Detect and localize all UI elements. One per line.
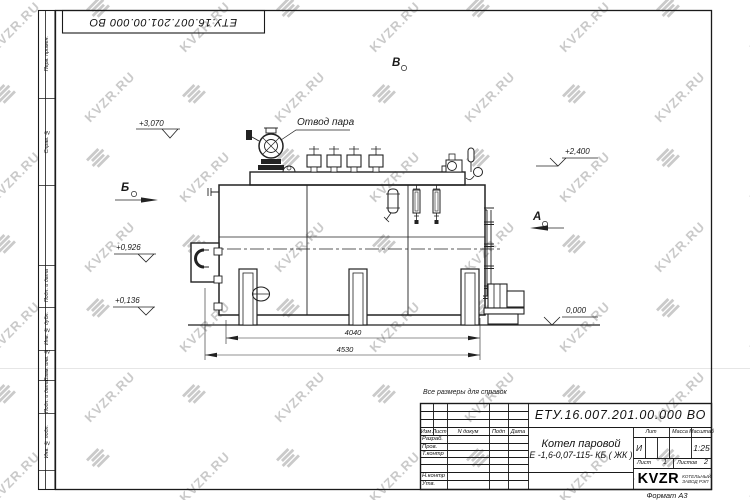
elevation-0136: +0,136: [115, 296, 140, 305]
elevation-3070: +3,070: [139, 119, 164, 128]
margin-cell-vzam-inv: Взам. инв. №: [38, 350, 55, 380]
row-prov: Пров.: [422, 444, 437, 450]
kvzr-spring-icon: [634, 472, 635, 486]
vessel: [384, 189, 400, 222]
doc-number-top: ЕТУ.16.007.201.00.000 ВО: [89, 16, 237, 28]
row-nkontr: Н.контр: [422, 473, 445, 479]
col-header-podp: Подп: [489, 428, 508, 435]
dimension-4530: 4530: [330, 345, 360, 354]
doc-number-top-box: ЕТУ.16.007.201.00.000 ВО: [62, 10, 265, 33]
massa-header: Масса: [669, 428, 691, 436]
row-razrab: Разраб.: [422, 436, 443, 442]
margin-cell-sprav-no: Справ. №: [38, 98, 55, 185]
view-label-b: Б: [121, 182, 129, 194]
margin-cell-podp-data-1: Подп. и дата: [38, 265, 55, 307]
margin-cell-inv-dubl: Инв. № дубл.: [38, 307, 55, 350]
steam-outlet-valve: [246, 128, 284, 170]
kvzr-logo-text: KVZR: [638, 471, 679, 487]
elevation-2400: +2,400: [565, 147, 590, 156]
titleblock-doc-number: ЕТУ.16.007.201.00.000 ВО: [529, 403, 712, 427]
titleblock-product-name: Котел паровой Е -1,6-0,07-115- КБ ( ЖК ): [529, 429, 633, 469]
view-label-a: А: [533, 211, 541, 223]
view-label-v: В: [392, 57, 400, 69]
lit-value: И: [633, 439, 645, 457]
margin-cell-perv-primen: Перв. примен.: [38, 10, 55, 98]
feed-pump: [484, 284, 524, 324]
company-logo-block: KVZR КОТЕЛЬНЫЙ ЗАВОД РЭП: [634, 469, 711, 489]
row-utv: Утв.: [422, 481, 435, 487]
kvzr-sub-line2: ЗАВОД РЭП: [682, 479, 708, 484]
col-header-n-dokum: N докум: [447, 428, 489, 435]
steam-outlet-label: Отвод пара: [297, 117, 354, 128]
safety-valves: [307, 146, 383, 172]
col-header-izm: Изм: [419, 428, 433, 435]
margin-cell-podp-data-2: Подп. и дата: [38, 380, 55, 413]
boiler-drawing: [113, 65, 600, 360]
row-tkontr: Т.контр: [422, 451, 444, 457]
product-name: Котел паровой: [542, 438, 621, 450]
burner: [191, 243, 222, 310]
dimension-4040: 4040: [338, 328, 368, 337]
manhole: [253, 287, 270, 301]
col-header-data: Дата: [508, 428, 528, 435]
masshtab-value: 1:25: [691, 439, 712, 457]
col-header-list: Лист: [432, 428, 447, 435]
leader-line: [281, 130, 350, 140]
side-valve: [208, 188, 219, 196]
water-level-gauges: [413, 185, 440, 224]
format-label: Формат А3: [617, 490, 717, 500]
support-legs: [239, 269, 479, 325]
drawing-sheet: KVZR.RU KVZR.RU: [0, 0, 750, 500]
boiler-deck: [250, 172, 465, 185]
list-value: 1: [663, 459, 667, 466]
reference-dimensions-note: Все размеры для справок: [423, 389, 507, 396]
product-type: Е -1,6-0,07-115- КБ ( ЖК ): [529, 450, 632, 460]
lit-header: Лит: [633, 428, 669, 436]
listov-label: Листов: [677, 460, 697, 466]
elevation-0000: 0,000: [566, 306, 586, 315]
masshtab-header: Масштаб: [691, 428, 712, 436]
deck-dome: [283, 166, 295, 172]
listov-value: 2: [704, 459, 708, 466]
view-arrows: [115, 65, 564, 230]
gauge-assembly: [442, 148, 483, 180]
list-label: Лист: [637, 460, 651, 466]
elevation-0926: +0,926: [116, 243, 141, 252]
margin-cell-inv-podl: Инв. № подл.: [38, 413, 55, 470]
